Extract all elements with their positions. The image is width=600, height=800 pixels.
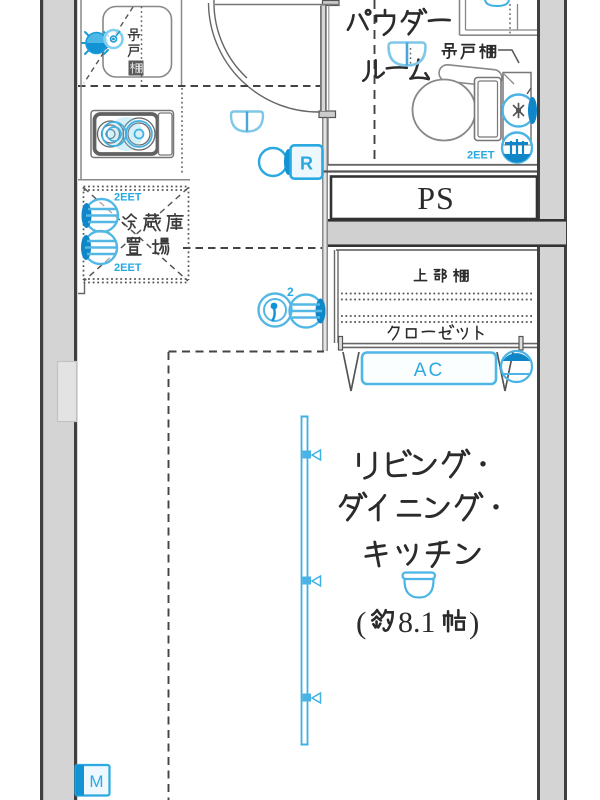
svg-text:8.1: 8.1 xyxy=(398,606,436,639)
svg-text:): ) xyxy=(469,605,479,640)
svg-text:2EET: 2EET xyxy=(114,192,142,204)
svg-text:2EET: 2EET xyxy=(114,262,142,274)
svg-text:(: ( xyxy=(356,605,366,640)
svg-text:R: R xyxy=(300,154,313,174)
svg-text:AC: AC xyxy=(414,360,444,381)
svg-text:2: 2 xyxy=(287,285,294,299)
svg-text:PS: PS xyxy=(417,180,455,216)
svg-text:M: M xyxy=(89,772,103,791)
svg-text:2EET: 2EET xyxy=(467,150,495,162)
